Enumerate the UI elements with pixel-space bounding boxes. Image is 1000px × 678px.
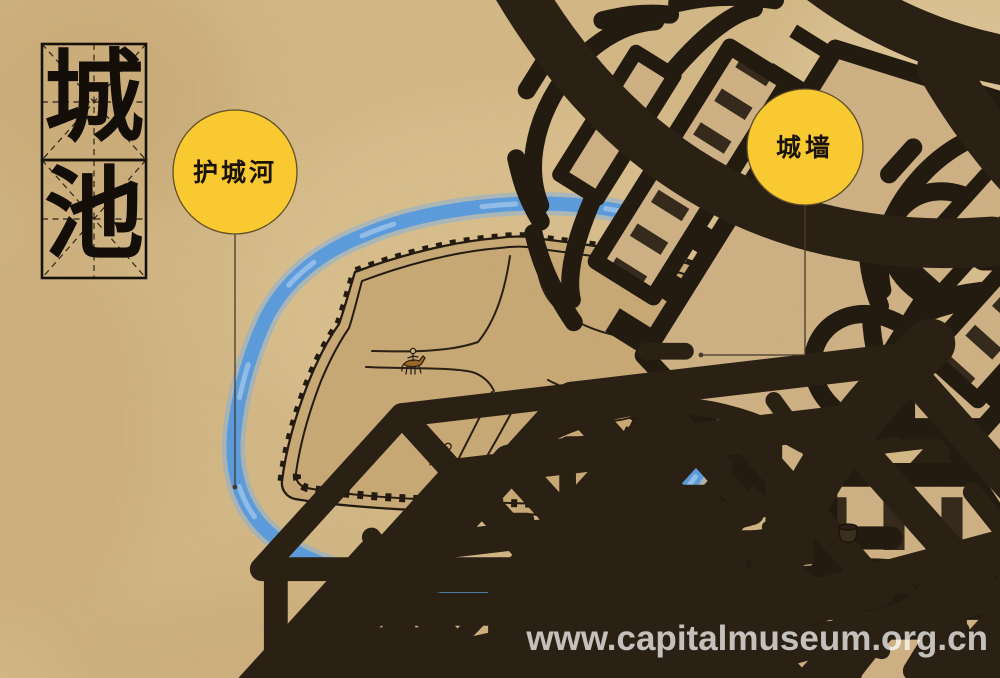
title-char-top: 城 [44,38,144,156]
title-char-bottom: 池 [44,155,144,273]
callout-dot-wall [699,353,704,358]
callout-label-moat: 护城河 [193,158,277,187]
watermark-text: www.capitalmuseum.org.cn [525,619,988,658]
callout-wall: 城墙 [747,89,863,205]
callout-dot-moat [233,485,238,490]
callout-moat: 护城河 [173,110,297,234]
paper-grain [0,0,1000,678]
title-block: 城 池 [42,38,146,278]
callout-label-wall: 城墙 [776,133,834,162]
illustration-canvas: 护城河 城墙 城 池 www.capitalmuseum.org.cn [0,0,1000,678]
page: 护城河 城墙 城 池 www.capitalmuseum.org.cn [0,0,1000,678]
